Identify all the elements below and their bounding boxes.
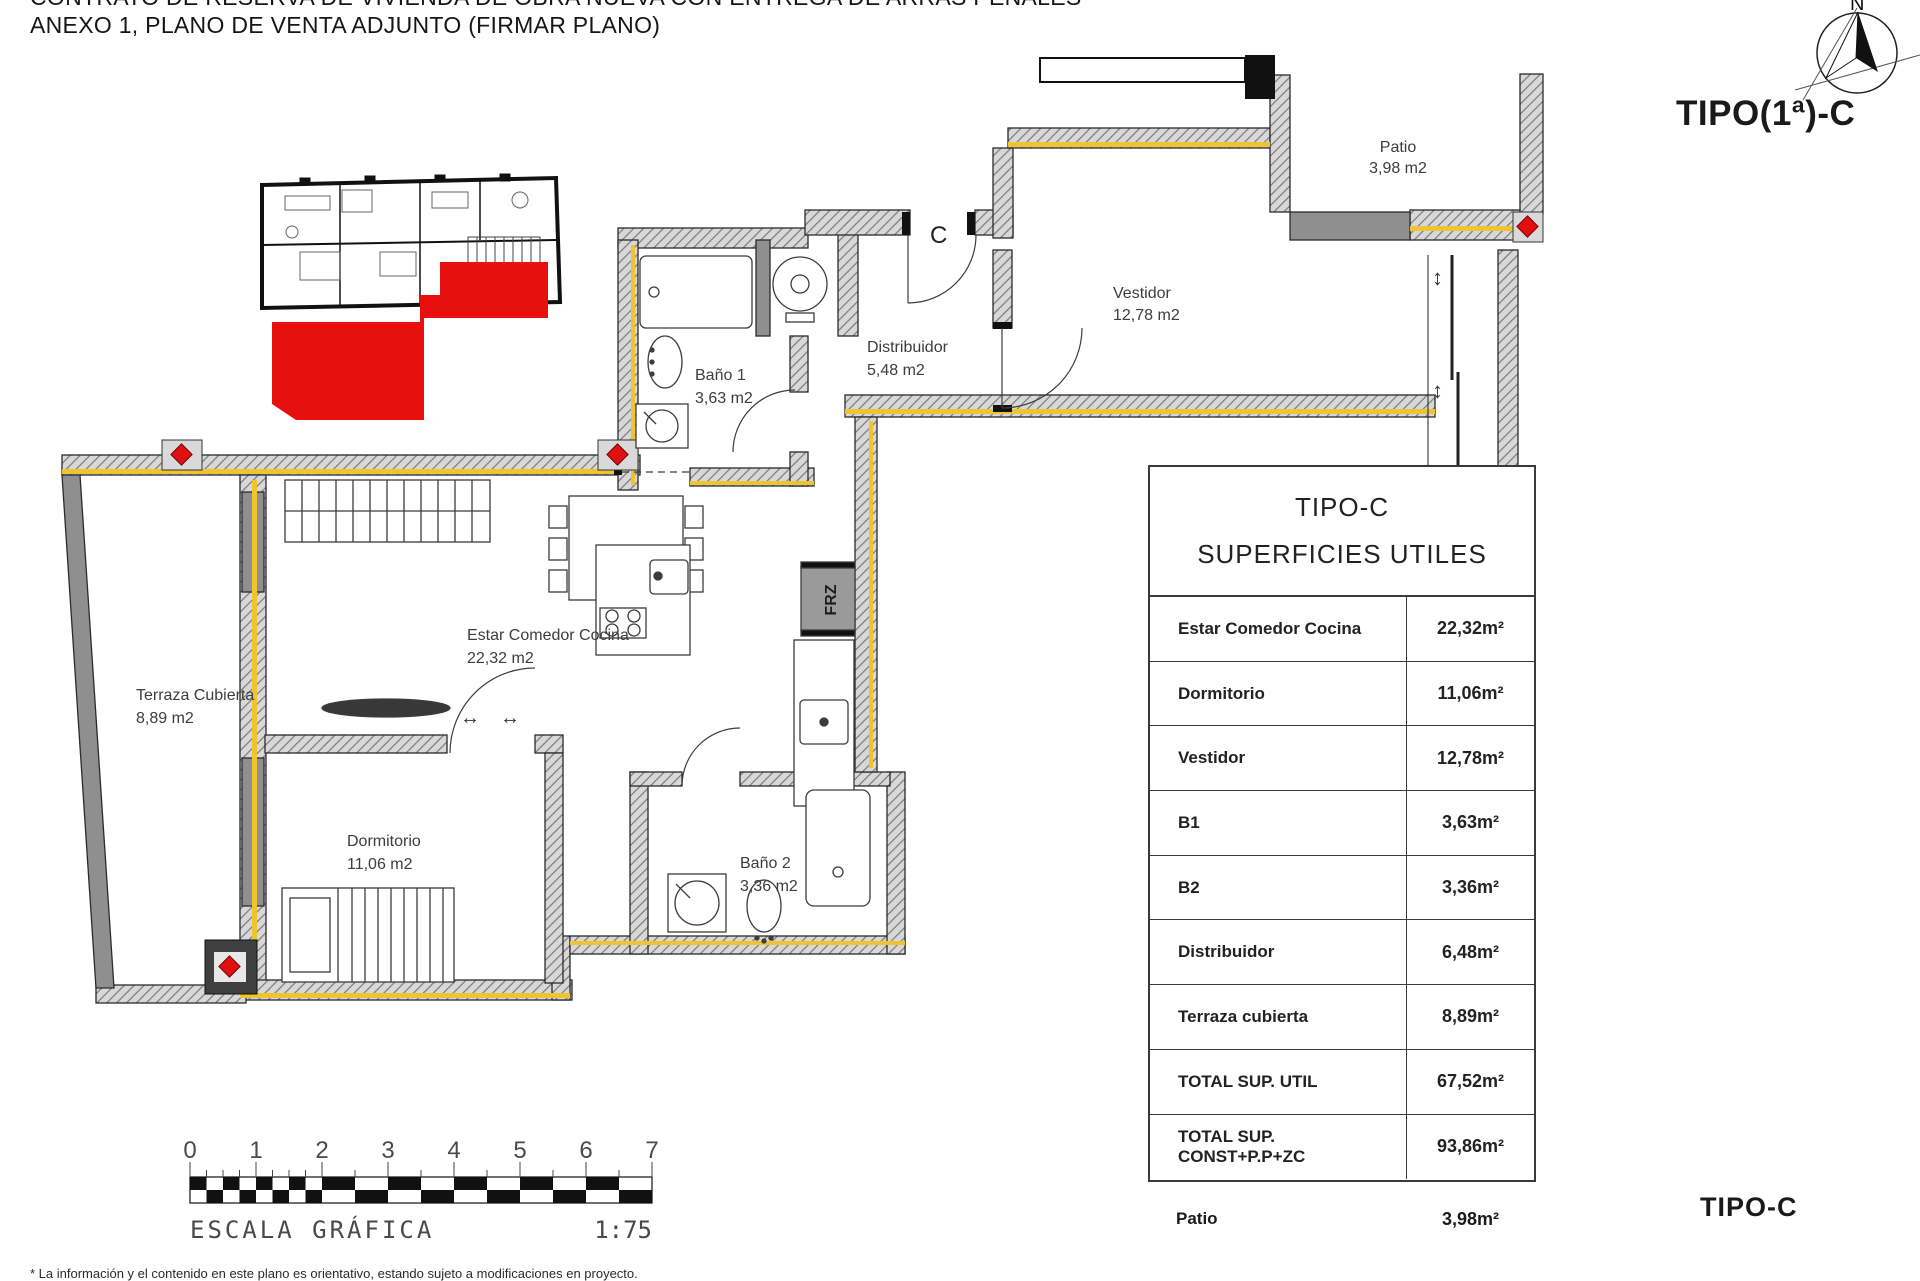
patio-north-wall bbox=[1040, 55, 1275, 99]
scale-tick: 2 bbox=[315, 1137, 328, 1164]
table-row: B13,63m² bbox=[1150, 791, 1534, 856]
unit-type-label-bottom: TIPO-C bbox=[1700, 1192, 1798, 1223]
scale-tick: 6 bbox=[579, 1137, 592, 1164]
room-label-bano2: Baño 2 bbox=[740, 855, 791, 872]
unit-type-label-top: TIPO(1ª)-C bbox=[1676, 94, 1855, 134]
scale-tick: 5 bbox=[513, 1137, 526, 1164]
compass-needle bbox=[1856, 12, 1878, 72]
table-row: Terraza cubierta8,89m² bbox=[1150, 985, 1534, 1050]
scale-tick: 7 bbox=[645, 1137, 658, 1164]
room-label-dormitorio: Dormitorio bbox=[347, 833, 421, 850]
room-area-bano1: 3,63 m2 bbox=[695, 390, 753, 407]
wardrobe-arrow-icon: ↕ bbox=[1432, 265, 1443, 290]
compass-north-label: N bbox=[1850, 0, 1864, 15]
room-area-terraza: 8,89 m2 bbox=[136, 710, 194, 727]
document-title-line1: CONTRATO DE RESERVA DE VIVIENDA DE OBRA … bbox=[30, 0, 1082, 11]
sliding-door-arrow-icon: ↔ bbox=[500, 707, 520, 729]
floorplan-drawing: ↕ ↕ ↔ ↔ bbox=[0, 0, 1920, 1280]
room-area-bano2: 3,36 m2 bbox=[740, 878, 798, 895]
room-area-vestidor: 12,78 m2 bbox=[1113, 307, 1180, 324]
room-area-estar: 22,32 m2 bbox=[467, 650, 534, 667]
table-row: Distribuidor6,48m² bbox=[1150, 920, 1534, 985]
room-label-estar: Estar Comedor Cocina bbox=[467, 627, 629, 644]
sofa bbox=[285, 480, 490, 542]
wardrobe-arrow-icon: ↕ bbox=[1432, 378, 1443, 403]
document-title-line2: ANEXO 1, PLANO DE VENTA ADJUNTO (FIRMAR … bbox=[30, 11, 1082, 39]
surfaces-table-header: TIPO-C SUPERFICIES UTILES bbox=[1150, 467, 1534, 597]
fridge-label: FRZ bbox=[823, 584, 840, 615]
scale-ratio: 1:75 bbox=[594, 1216, 652, 1244]
entry-door-label: C bbox=[930, 222, 947, 249]
key-plan bbox=[262, 174, 560, 420]
footnote: * La información y el contenido en este … bbox=[30, 1266, 638, 1281]
room-area-patio: 3,98 m2 bbox=[1369, 160, 1427, 177]
tv-sideboard bbox=[322, 699, 450, 717]
scale-tick: 4 bbox=[447, 1137, 460, 1164]
scale-tick: 0 bbox=[183, 1137, 196, 1164]
table-row: B23,36m² bbox=[1150, 856, 1534, 921]
bathtub bbox=[806, 790, 870, 906]
bed bbox=[282, 888, 454, 982]
room-label-terraza: Terraza Cubierta bbox=[136, 687, 254, 704]
room-label-distribuidor: Distribuidor bbox=[867, 339, 949, 356]
table-row: Estar Comedor Cocina22,32m² bbox=[1150, 597, 1534, 662]
surfaces-table-subtitle: SUPERFICIES UTILES bbox=[1197, 539, 1487, 570]
table-row: TOTAL SUP. CONST+P.P+ZC93,86m² bbox=[1150, 1115, 1534, 1180]
surfaces-table: TIPO-C SUPERFICIES UTILES Estar Comedor … bbox=[1148, 465, 1536, 1182]
scale-bar: 0 1 2 3 4 5 6 7 ESCALA GRÁFICA 1:75 bbox=[183, 1137, 658, 1244]
table-row: Vestidor12,78m² bbox=[1150, 726, 1534, 791]
patio-extra-row: Patio 3,98m² bbox=[1148, 1196, 1536, 1242]
room-label-patio: Patio bbox=[1380, 139, 1417, 156]
wardrobe-sliding-doors bbox=[1428, 255, 1458, 495]
sliding-door-arrow-icon: ↔ bbox=[460, 707, 480, 729]
scale-caption: ESCALA GRÁFICA bbox=[190, 1215, 434, 1244]
table-row: Dormitorio11,06m² bbox=[1150, 662, 1534, 727]
room-label-vestidor: Vestidor bbox=[1113, 285, 1171, 302]
plan-sheet: { "header": { "line1": "CONTRATO DE RESE… bbox=[0, 0, 1920, 1280]
document-title: CONTRATO DE RESERVA DE VIVIENDA DE OBRA … bbox=[30, 0, 1082, 39]
compass-rose: N bbox=[1795, 0, 1920, 100]
room-area-dormitorio: 11,06 m2 bbox=[347, 856, 413, 873]
scale-tick: 1 bbox=[249, 1137, 262, 1164]
table-row: TOTAL SUP. UTIL67,52m² bbox=[1150, 1050, 1534, 1115]
room-area-distribuidor: 5,48 m2 bbox=[867, 362, 925, 379]
surfaces-table-title: TIPO-C bbox=[1295, 492, 1389, 523]
scale-tick: 3 bbox=[381, 1137, 394, 1164]
room-label-bano1: Baño 1 bbox=[695, 367, 746, 384]
